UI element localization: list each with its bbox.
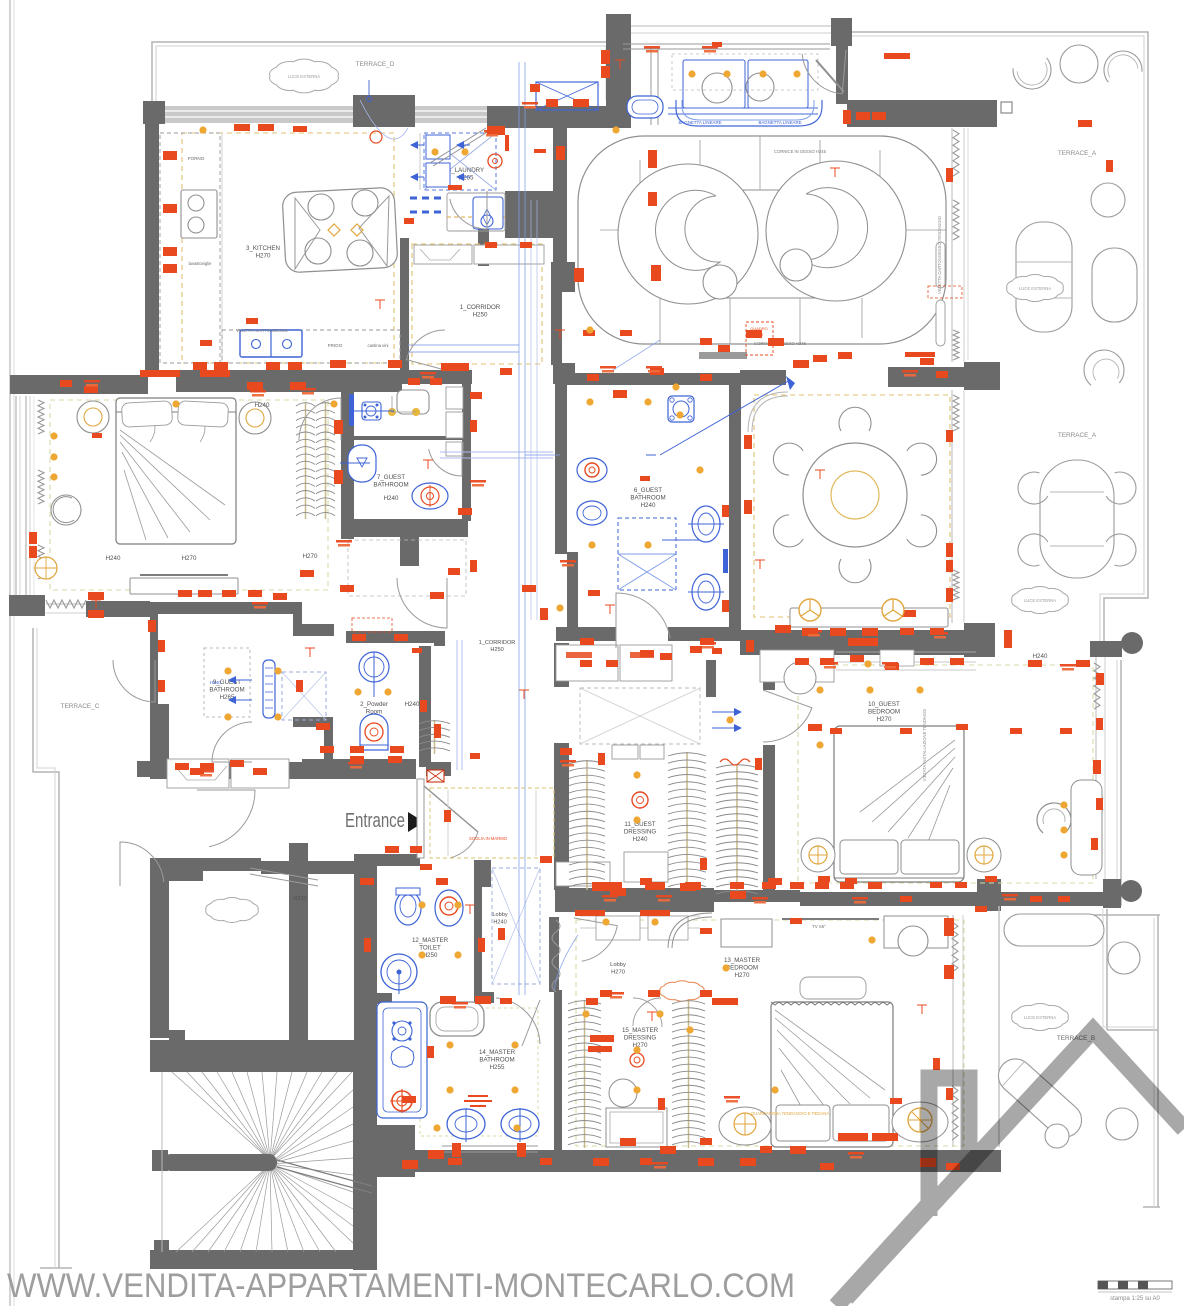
svg-text:SOGLIA IN MARMO: SOGLIA IN MARMO (469, 836, 508, 841)
svg-text:WWW.VENDITA-APPARTAMENTI-MONTE: WWW.VENDITA-APPARTAMENTI-MONTECARLO.COM (7, 1267, 795, 1305)
svg-text:VELETTA CARTONGESSO: VELETTA CARTONGESSO (236, 328, 288, 333)
svg-text:2_Powder: 2_Powder (360, 701, 388, 708)
svg-text:TOILET: TOILET (419, 945, 441, 952)
svg-text:TERRACE_A: TERRACE_A (1058, 432, 1097, 439)
svg-text:VELETTA CARTONGESSO TENDAGGIO: VELETTA CARTONGESSO TENDAGGIO (937, 215, 942, 294)
svg-text:Lobby: Lobby (610, 962, 626, 968)
svg-text:1_CORRIDOR: 1_CORRIDOR (479, 640, 516, 646)
svg-text:H250: H250 (490, 647, 503, 653)
svg-text:H240: H240 (405, 701, 420, 708)
svg-text:H240: H240 (633, 836, 648, 843)
svg-text:LUCE ESTERNA: LUCE ESTERNA (288, 74, 320, 79)
svg-text:stampa 1:25 su A0: stampa 1:25 su A0 (1110, 1296, 1160, 1302)
svg-text:7_GUEST: 7_GUEST (377, 474, 405, 481)
svg-text:VIETATA INSTALLAZIONE TENDAGGI: VIETATA INSTALLAZIONE TENDAGGI (922, 709, 927, 782)
svg-text:H240: H240 (106, 555, 121, 562)
svg-text:LUCE ESTERNA: LUCE ESTERNA (1024, 1015, 1056, 1020)
svg-text:CORNICE IN GESSO H245: CORNICE IN GESSO H245 (774, 149, 827, 154)
svg-text:H240: H240 (384, 495, 399, 502)
svg-text:H250: H250 (473, 312, 488, 319)
svg-text:DRESSING: DRESSING (624, 1035, 657, 1042)
svg-text:12_MASTER: 12_MASTER (412, 937, 449, 944)
svg-text:lavastoviglie: lavastoviglie (189, 261, 212, 266)
svg-text:FORNO: FORNO (188, 156, 205, 161)
svg-text:H220: H220 (293, 896, 306, 902)
svg-text:H270: H270 (182, 555, 197, 562)
svg-text:H240: H240 (493, 920, 506, 926)
svg-text:H270: H270 (735, 972, 750, 979)
svg-text:TERRACE_A: TERRACE_A (1058, 150, 1097, 157)
svg-text:10_GUEST: 10_GUEST (868, 701, 900, 708)
svg-text:cantina vini: cantina vini (368, 343, 389, 348)
svg-text:BAGNETTA LINEARE: BAGNETTA LINEARE (758, 120, 801, 125)
svg-text:4_LAUNDRY: 4_LAUNDRY (448, 167, 484, 174)
svg-text:H240: H240 (1033, 653, 1048, 660)
svg-text:DATI: DATI (755, 332, 764, 337)
svg-text:Entrance: Entrance (345, 810, 405, 832)
svg-text:6_GUEST: 6_GUEST (634, 487, 662, 494)
svg-text:H270: H270 (611, 970, 625, 976)
svg-text:LUCE ESTERNA: LUCE ESTERNA (1019, 286, 1051, 291)
svg-text:BATHROOM: BATHROOM (479, 1057, 514, 1064)
svg-text:11_GUEST: 11_GUEST (624, 821, 655, 828)
svg-text:H255: H255 (490, 1064, 505, 1071)
svg-text:GUARDAROBA TENDAGGIO E PEDANA: GUARDAROBA TENDAGGIO E PEDANA (751, 1111, 829, 1116)
svg-text:3_KITCHEN: 3_KITCHEN (246, 245, 280, 252)
svg-text:TERRACE_D: TERRACE_D (356, 61, 395, 68)
svg-text:13_MASTER: 13_MASTER (724, 957, 761, 964)
svg-text:QUADRO: QUADRO (750, 326, 768, 331)
svg-text:TERRACE_C: TERRACE_C (61, 703, 100, 710)
svg-text:FRIGO: FRIGO (328, 343, 343, 348)
svg-text:LUCE ESTERNA: LUCE ESTERNA (1024, 598, 1056, 603)
svg-text:H270: H270 (303, 553, 318, 560)
svg-text:H270: H270 (256, 253, 271, 260)
svg-text:TV 65": TV 65" (812, 924, 826, 929)
svg-text:H270: H270 (877, 716, 892, 723)
svg-text:BEDROOM: BEDROOM (726, 965, 758, 972)
svg-text:15_MASTER: 15_MASTER (622, 1027, 659, 1034)
svg-text:BEDROOM: BEDROOM (868, 709, 900, 716)
svg-text:H240: H240 (641, 502, 656, 509)
svg-text:DRESSING: DRESSING (624, 829, 657, 836)
svg-text:1_CORRIDOR: 1_CORRIDOR (460, 304, 501, 311)
svg-text:BATHROOM: BATHROOM (209, 687, 244, 694)
svg-text:BATHROOM: BATHROOM (373, 482, 408, 489)
svg-text:Lobby: Lobby (492, 912, 507, 918)
svg-text:H240: H240 (210, 680, 221, 685)
svg-text:14_MASTER: 14_MASTER (479, 1049, 516, 1056)
svg-text:BATHROOM: BATHROOM (630, 495, 665, 502)
